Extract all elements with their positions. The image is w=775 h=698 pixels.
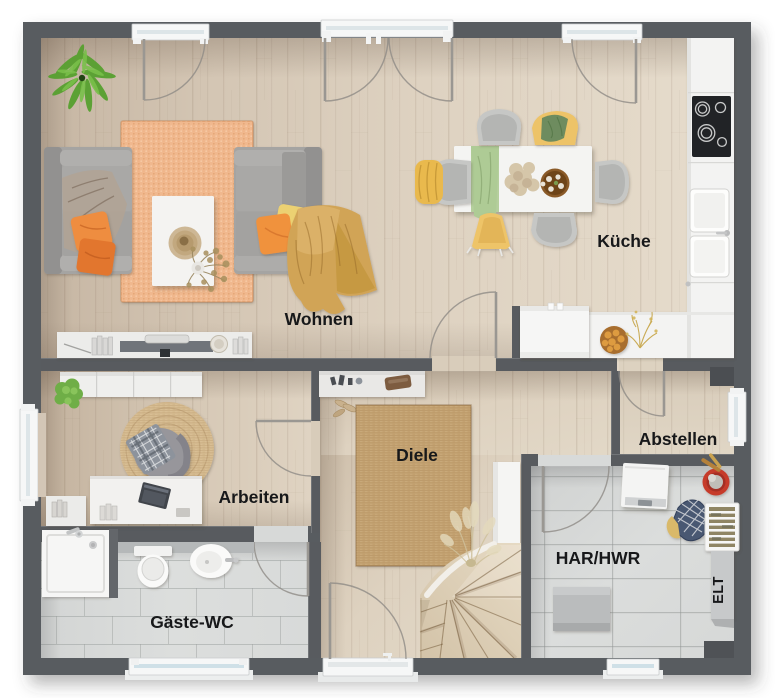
svg-text:Diele: Diele xyxy=(396,445,438,465)
svg-text:Arbeiten: Arbeiten xyxy=(219,487,290,507)
svg-text:Küche: Küche xyxy=(597,231,651,251)
svg-text:Wohnen: Wohnen xyxy=(285,309,354,329)
svg-text:HAR/HWR: HAR/HWR xyxy=(556,548,641,568)
svg-text:ELT: ELT xyxy=(711,576,727,604)
svg-text:Gäste-WC: Gäste-WC xyxy=(150,612,234,632)
svg-text:Abstellen: Abstellen xyxy=(639,429,718,449)
